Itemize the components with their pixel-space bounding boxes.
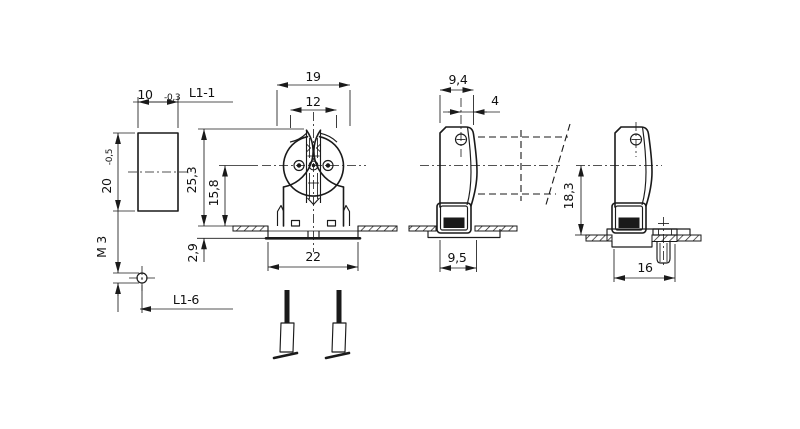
- dim-plate-height-tol: -0,5: [105, 149, 115, 165]
- stud-assembly: [653, 217, 677, 268]
- dim-side-hole-offset: 4: [491, 93, 499, 108]
- view-side-mounted: 18,3 16: [561, 122, 701, 282]
- dim-front-slot-width: 12: [305, 94, 320, 109]
- terminal-right: [326, 290, 349, 358]
- view-side: 9,4 4 9,5: [409, 72, 570, 272]
- dim-plate-width: 10: [137, 87, 153, 102]
- technical-drawing-canvas: 10 -0,3 L1-1 20 -0,5 M 3 L1-6: [0, 0, 800, 429]
- label-length-ref-6: L1-6: [173, 292, 200, 307]
- dim-stud-thread: M 3: [94, 236, 109, 258]
- dim-mounted-base-depth: 16: [637, 260, 653, 275]
- dim-front-height: 25,3: [184, 167, 199, 194]
- dim-front-axis-height: 15,8: [206, 179, 221, 206]
- label-length-ref-1: L1-1: [189, 85, 215, 100]
- dim-side-depth: 9,4: [449, 72, 468, 87]
- dim-front-below-panel: 2,9: [185, 243, 200, 262]
- view-front: 19 12 25,3 15,8 2,9 22: [184, 69, 397, 358]
- dim-mounted-axis-height: 18,3: [561, 183, 576, 210]
- dim-front-body-width: 19: [305, 69, 321, 84]
- dim-side-latch-width: 9,5: [448, 250, 467, 265]
- terminal-left: [274, 290, 297, 358]
- dim-plate-width-tol: -0,3: [164, 93, 180, 103]
- dim-plate-height: 20: [99, 178, 114, 194]
- lamp-holder-drawing: 10 -0,3 L1-1 20 -0,5 M 3 L1-6: [0, 0, 800, 429]
- dim-front-base-width: 22: [305, 249, 320, 264]
